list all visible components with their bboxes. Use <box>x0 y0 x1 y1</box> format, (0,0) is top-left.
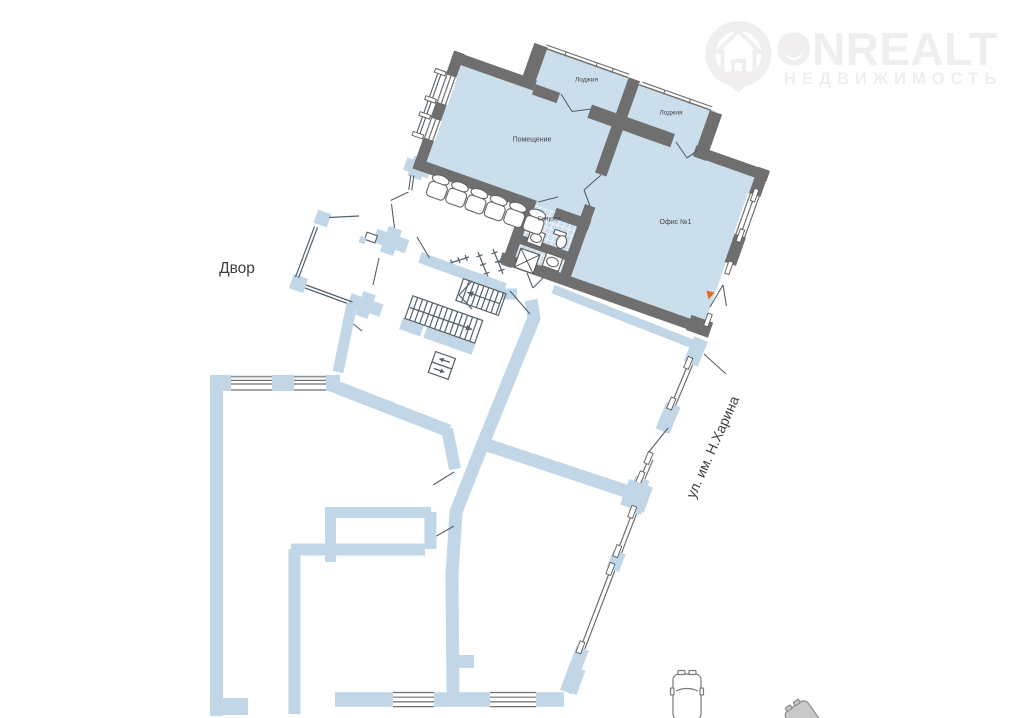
svg-text:ONREALT: ONREALT <box>776 23 998 75</box>
svg-text:Лоджия: Лоджия <box>575 77 599 84</box>
svg-text:Санузел: Санузел <box>537 217 561 223</box>
svg-text:Офис №1: Офис №1 <box>660 219 692 226</box>
svg-text:Лоджия: Лоджия <box>659 110 683 117</box>
svg-text:Помещение: Помещение <box>513 137 552 144</box>
svg-text:Двор: Двор <box>219 260 255 277</box>
svg-text:НЕДВИЖИМОСТЬ: НЕДВИЖИМОСТЬ <box>784 70 1002 88</box>
